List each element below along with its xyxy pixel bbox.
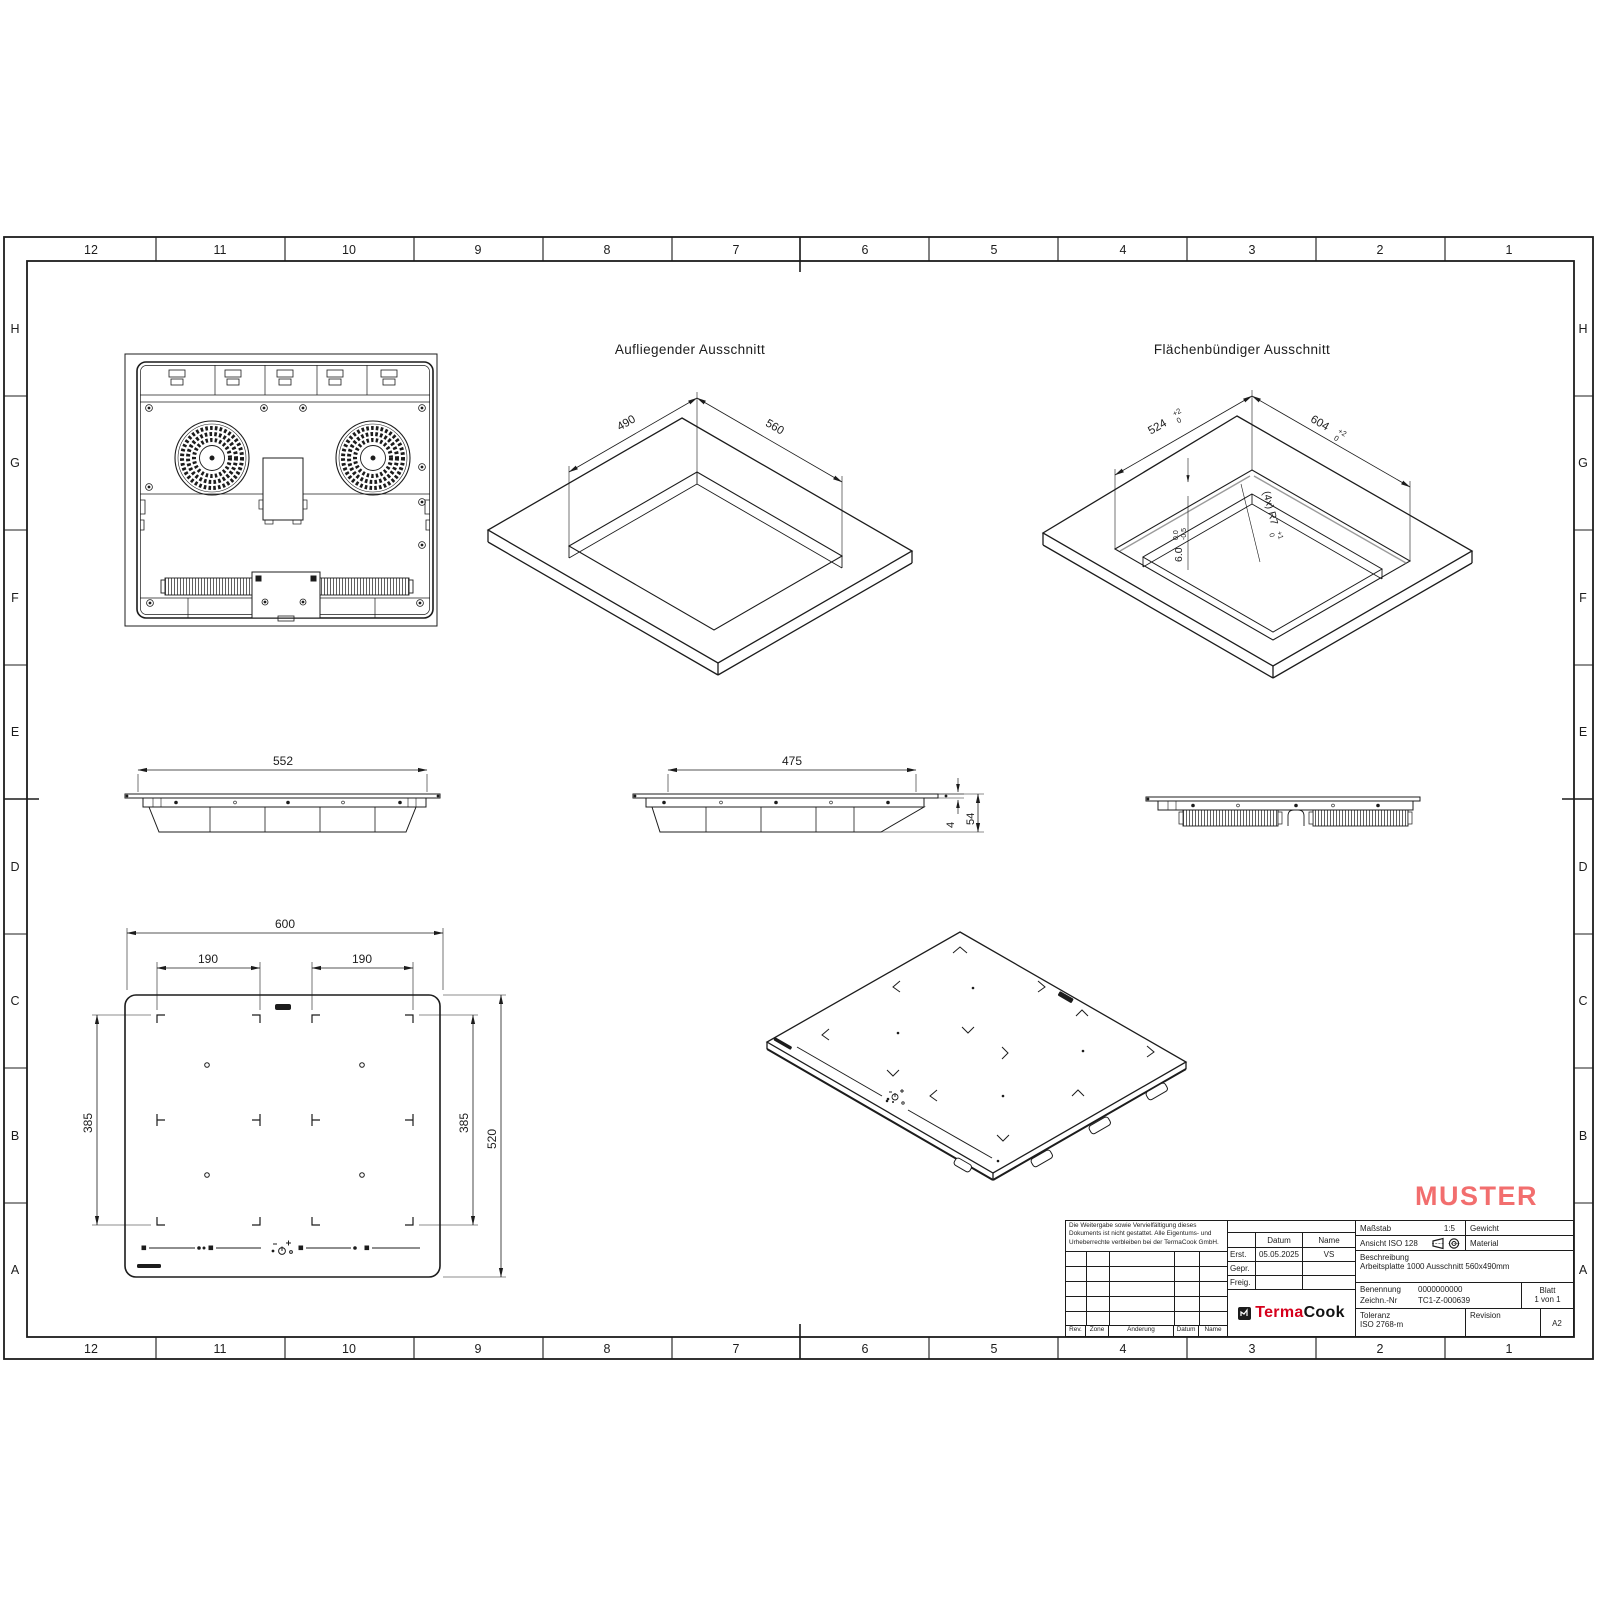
isometric-view [735, 925, 1195, 1245]
svg-text:D: D [10, 860, 19, 874]
svg-text:3: 3 [1249, 243, 1256, 257]
toleranz-cell: ToleranzISO 2768-m [1355, 1308, 1466, 1337]
svg-text:11: 11 [214, 243, 227, 257]
glass-panel [125, 794, 440, 798]
svg-text:B: B [1579, 1129, 1587, 1143]
dim-385-left: 385 [81, 1113, 95, 1133]
dim-604: 604 +2 0 [1307, 412, 1349, 446]
cooling-fan-right [336, 421, 410, 495]
dim-190-right: 190 [352, 952, 372, 966]
svg-text:0.0: 0.0 [1173, 530, 1180, 540]
svg-text:B: B [11, 1129, 19, 1143]
svg-text:C: C [1578, 994, 1587, 1008]
svg-text:1: 1 [1506, 243, 1513, 257]
svg-text:524: 524 [1146, 417, 1169, 437]
svg-text:2: 2 [1377, 1342, 1384, 1356]
side-view-front: 552 [113, 748, 453, 838]
first-angle-projection-icon [1432, 1238, 1462, 1249]
svg-text:8: 8 [604, 1342, 611, 1356]
svg-text:12: 12 [84, 243, 98, 257]
svg-text:4: 4 [1120, 1342, 1127, 1356]
mounting-clips [169, 370, 397, 385]
company-logo: TermaCook [1227, 1289, 1356, 1337]
view-title: Flächenbündiger Ausschnitt [1154, 342, 1330, 357]
dim-190-left: 190 [198, 952, 218, 966]
bottom-view [113, 350, 445, 630]
svg-text:9: 9 [475, 243, 482, 257]
revision-value-cell: A2 [1540, 1308, 1574, 1337]
glass-outline [125, 995, 440, 1277]
svg-text:1: 1 [1506, 1342, 1513, 1356]
svg-text:3: 3 [1249, 1342, 1256, 1356]
benennung-cell: Benennung0000000000 Zeichn.-NrTC1-Z-0006… [1355, 1282, 1522, 1309]
svg-text:G: G [10, 456, 20, 470]
dim-475: 475 [782, 754, 802, 768]
svg-text:7: 7 [733, 1342, 740, 1356]
terminal-box [252, 572, 320, 621]
vent-grille-right [1313, 810, 1408, 826]
glass-top-face [767, 932, 1186, 1173]
dim-54: 54 [965, 813, 977, 825]
surface-cutout-view: Aufliegender Ausschnitt 490 560 [470, 330, 930, 680]
brand-logo-mark [275, 1004, 291, 1010]
svg-text:5: 5 [991, 1342, 998, 1356]
svg-text:-0.5: -0.5 [1181, 528, 1188, 540]
svg-text:0: 0 [1175, 415, 1183, 425]
svg-text:10: 10 [342, 243, 356, 257]
beschreibung-cell: Beschreibung Arbeitsplatte 1000 Ausschni… [1355, 1250, 1574, 1283]
vent-grille-left [1183, 810, 1278, 826]
svg-text:6: 6 [862, 243, 869, 257]
svg-text:2: 2 [1377, 243, 1384, 257]
dim-385-right: 385 [457, 1113, 471, 1133]
svg-text:E: E [11, 725, 19, 739]
dim-560: 560 [763, 417, 786, 437]
side-view-rear [1098, 750, 1428, 832]
svg-text:G: G [1578, 456, 1588, 470]
masstab-cell: Maßstab1:5 [1355, 1220, 1466, 1236]
erst-date: 05.05.2025 [1255, 1247, 1303, 1262]
svg-text:H: H [10, 322, 19, 336]
datum-header: Datum [1255, 1232, 1303, 1248]
svg-text:F: F [1579, 591, 1587, 605]
svg-text:0: 0 [1332, 433, 1340, 443]
copyright-note: Die Weitergabe sowie Vervielfältigung di… [1065, 1220, 1228, 1252]
brand-wordmark [137, 1264, 161, 1268]
svg-text:C: C [10, 994, 19, 1008]
glass-panel [633, 794, 938, 798]
svg-text:4: 4 [1120, 243, 1127, 257]
dim-600: 600 [275, 917, 295, 931]
power-control [272, 1241, 292, 1255]
dim-552: 552 [273, 754, 293, 768]
svg-text:E: E [1579, 725, 1587, 739]
svg-text:H: H [1578, 322, 1587, 336]
svg-text:A: A [11, 1263, 20, 1277]
blatt-cell: Blatt1 von 1 [1521, 1282, 1574, 1309]
cooking-zone-marks [157, 1015, 413, 1225]
glass-panel [1146, 797, 1420, 801]
dim-490: 490 [615, 413, 638, 433]
dim-4: 4 [945, 822, 957, 828]
dim-520: 520 [485, 1129, 499, 1149]
svg-text:7: 7 [733, 243, 740, 257]
svg-text:D: D [1578, 860, 1587, 874]
gewicht-cell: Gewicht [1465, 1220, 1574, 1236]
housing-tub [149, 807, 416, 832]
junction-box [259, 458, 307, 524]
muster-watermark: MUSTER [1415, 1181, 1538, 1212]
svg-text:11: 11 [214, 1342, 227, 1356]
flush-cutout-view: Flächenbündiger Ausschnitt ​ 524 +2 0 60… [1020, 330, 1500, 680]
erst-label: Erst. [1227, 1247, 1256, 1262]
svg-text:9: 9 [475, 1342, 482, 1356]
cable-clip [1288, 810, 1304, 826]
ansicht-cell: Ansicht ISO 128 [1355, 1235, 1466, 1251]
side-view-section: 475 4 54 [626, 748, 991, 840]
gepr-label: Gepr. [1227, 1261, 1256, 1276]
dim-524: ​ 524 +2 0 [1145, 406, 1187, 440]
revision-cell: Revision [1465, 1308, 1541, 1337]
svg-text:10: 10 [342, 1342, 356, 1356]
revision-grid [1065, 1251, 1228, 1326]
svg-text:12: 12 [84, 1342, 98, 1356]
svg-text:A: A [1579, 1263, 1588, 1277]
logo-icon [1238, 1307, 1251, 1320]
name-header: Name [1302, 1232, 1356, 1248]
svg-text:6: 6 [862, 1342, 869, 1356]
control-panel [142, 1241, 420, 1255]
top-view: 600 190 190 385 385 520 [75, 890, 545, 1290]
drawing-sheet: 121110987654321 121110987654321 HGFEDCBA… [0, 0, 1600, 1600]
freig-label: Freig. [1227, 1275, 1256, 1290]
svg-text:5: 5 [991, 243, 998, 257]
view-title: Aufliegender Ausschnitt [615, 342, 765, 357]
erst-name: VS [1302, 1247, 1356, 1262]
svg-text:8: 8 [604, 243, 611, 257]
housing-tub [652, 807, 924, 832]
svg-text:F: F [11, 591, 19, 605]
title-block: Die Weitergabe sowie Vervielfältigung di… [1065, 1220, 1574, 1337]
material-cell: Material [1465, 1235, 1574, 1251]
svg-text:6.0: 6.0 [1173, 547, 1185, 562]
cooling-fan-left [175, 421, 249, 495]
